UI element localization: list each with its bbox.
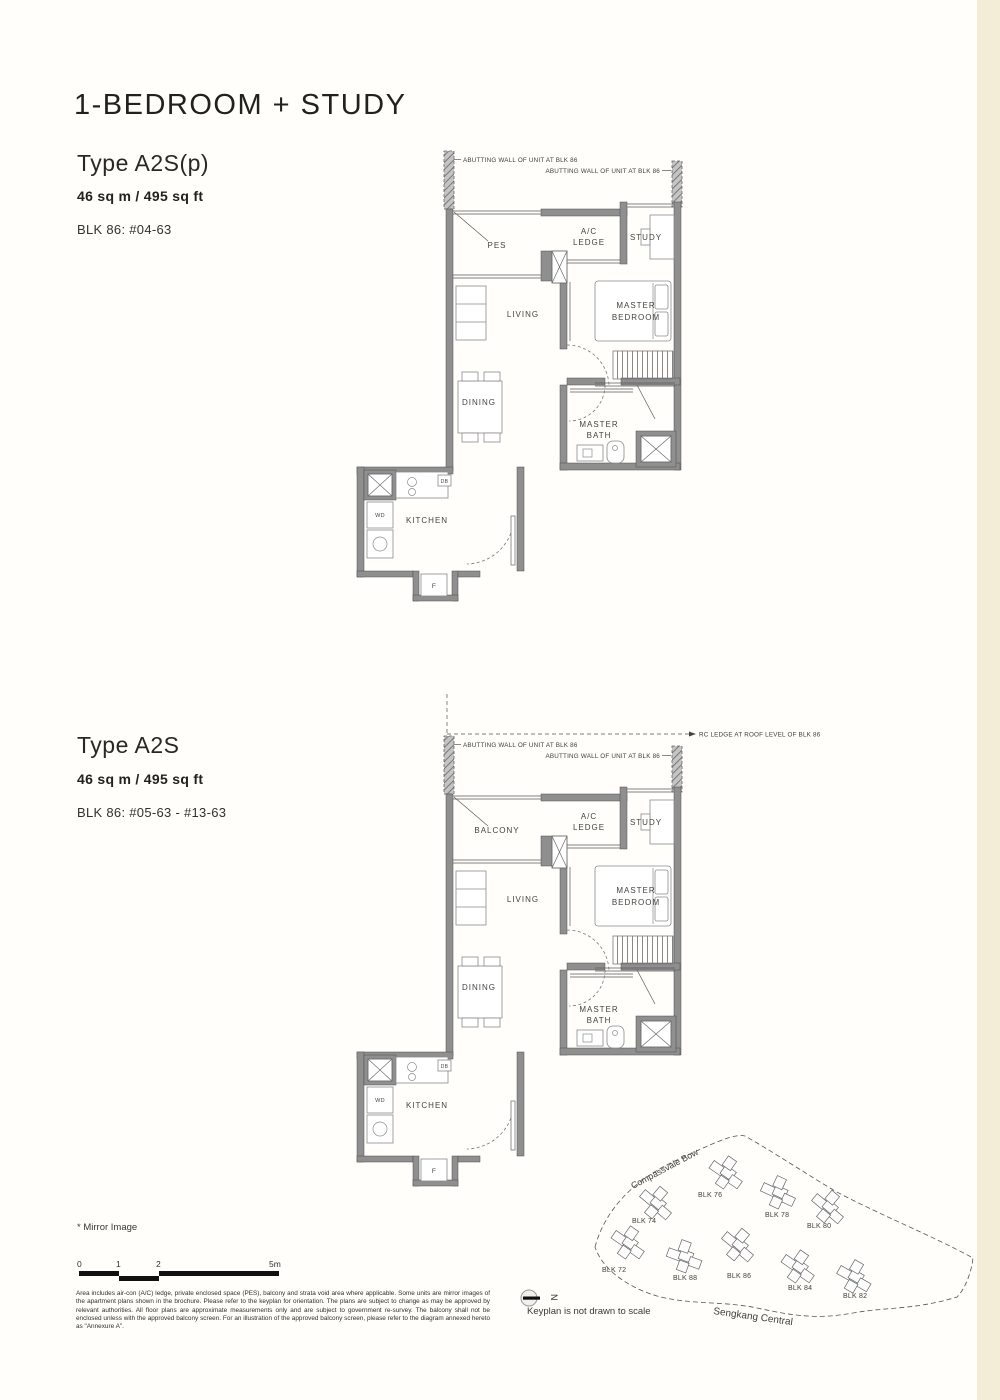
block-label-72: BLK 72	[602, 1267, 626, 1274]
room-label-study: STUDY	[630, 818, 662, 827]
room-label-kitchen: KITCHEN	[406, 1101, 448, 1110]
label-db: DB	[441, 479, 449, 485]
room-label-master-bath: MASTER	[579, 1005, 618, 1014]
floorplan-a2sp-geometry	[357, 151, 682, 601]
keyplan-road-top: Compassvale Bow	[629, 1147, 700, 1191]
svg-text:BEDROOM: BEDROOM	[612, 898, 660, 907]
scale-tick-0: 0	[77, 1259, 82, 1269]
keyplan: Compassvale Bow Sengkang Central	[585, 1125, 980, 1325]
plan-a2sp-type-title: Type A2S(p)	[77, 150, 209, 177]
block-label-74: BLK 74	[632, 1218, 656, 1225]
svg-text:BATH: BATH	[587, 431, 612, 440]
svg-text:LEDGE: LEDGE	[573, 238, 605, 247]
plan-a2sp-units: BLK 86: #04-63	[77, 222, 172, 237]
room-label-study: STUDY	[630, 233, 662, 242]
block-label-78: BLK 78	[765, 1212, 789, 1219]
plan-a2s-type-title: Type A2S	[77, 732, 179, 759]
scale-tick-2: 2	[156, 1259, 161, 1269]
abutting-wall-left-label: ABUTTING WALL OF UNIT AT BLK 86	[463, 742, 578, 749]
floorplan-a2s: RC LEDGE AT ROOF LEVEL OF BLK 86 ABUTTIN…	[355, 690, 835, 1192]
floorplan-a2s-annotations: RC LEDGE AT ROOF LEVEL OF BLK 86 ABUTTIN…	[447, 694, 821, 760]
label-fridge: F	[432, 1168, 436, 1175]
block-cluster-86	[716, 1222, 762, 1267]
block-label-82: BLK 82	[843, 1293, 867, 1300]
disclaimer-text: Area includes air-con (A/C) ledge, priva…	[76, 1290, 490, 1332]
scale-bar-segments	[79, 1271, 279, 1281]
north-arrow-icon	[523, 1297, 540, 1300]
block-cluster-72	[606, 1221, 652, 1266]
scale-tick-1: 1	[116, 1259, 121, 1269]
room-label-pes: PES	[487, 241, 506, 250]
scale-bar: 0 1 2 5m	[76, 1258, 288, 1288]
block-label-76: BLK 76	[698, 1192, 722, 1199]
rc-ledge-label: RC LEDGE AT ROOF LEVEL OF BLK 86	[699, 732, 821, 739]
label-wd: WD	[375, 513, 385, 519]
plan-a2sp-area: 46 sq m / 495 sq ft	[77, 188, 203, 204]
block-label-80: BLK 80	[807, 1223, 831, 1230]
page-edge-strip	[977, 0, 1000, 1400]
block-cluster-88	[663, 1236, 706, 1276]
room-label-dining: DINING	[462, 983, 496, 992]
svg-text:BATH: BATH	[587, 1016, 612, 1025]
room-label-living: LIVING	[507, 310, 539, 319]
block-cluster-84	[776, 1245, 822, 1290]
keyplan-site-boundary	[595, 1136, 973, 1317]
block-label-84: BLK 84	[788, 1285, 812, 1292]
abutting-wall-left-label: ABUTTING WALL OF UNIT AT BLK 86	[463, 157, 578, 164]
room-label-ac-ledge: A/C	[581, 812, 597, 821]
plan-a2s-area: 46 sq m / 495 sq ft	[77, 771, 203, 787]
svg-text:BEDROOM: BEDROOM	[612, 313, 660, 322]
page-title: 1-BEDROOM + STUDY	[74, 89, 406, 122]
svg-text:LEDGE: LEDGE	[573, 823, 605, 832]
block-cluster-76	[704, 1151, 750, 1196]
label-db: DB	[441, 1064, 449, 1070]
keyplan-road-bottom: Sengkang Central	[713, 1306, 794, 1325]
keyplan-scale-note: Keyplan is not drawn to scale	[527, 1306, 651, 1317]
floorplan-a2sp-annotations: ABUTTING WALL OF UNIT AT BLK 86 ABUTTING…	[454, 157, 671, 175]
rc-ledge-arrow	[689, 732, 696, 737]
room-label-kitchen: KITCHEN	[406, 516, 448, 525]
mirror-image-note: * Mirror Image	[77, 1222, 137, 1233]
label-fridge: F	[432, 583, 436, 590]
label-wd: WD	[375, 1098, 385, 1104]
floorplan-a2sp: ABUTTING WALL OF UNIT AT BLK 86 ABUTTING…	[355, 145, 700, 603]
block-label-86: BLK 86	[727, 1273, 751, 1280]
scale-tick-5m: 5m	[269, 1259, 281, 1269]
floorplan-a2s-geometry	[357, 736, 682, 1186]
room-label-master-bedroom: MASTER	[616, 886, 655, 895]
north-letter: N	[549, 1294, 559, 1301]
room-label-master-bath: MASTER	[579, 420, 618, 429]
room-label-ac-ledge: A/C	[581, 227, 597, 236]
abutting-wall-right-label: ABUTTING WALL OF UNIT AT BLK 86	[545, 753, 660, 760]
room-label-master-bedroom: MASTER	[616, 301, 655, 310]
block-label-88: BLK 88	[673, 1275, 697, 1282]
abutting-wall-right-label: ABUTTING WALL OF UNIT AT BLK 86	[545, 168, 660, 175]
room-label-balcony: BALCONY	[474, 826, 519, 835]
room-label-dining: DINING	[462, 398, 496, 407]
plan-a2s-units: BLK 86: #05-63 - #13-63	[77, 805, 226, 820]
block-cluster-78	[757, 1172, 801, 1214]
room-label-living: LIVING	[507, 895, 539, 904]
